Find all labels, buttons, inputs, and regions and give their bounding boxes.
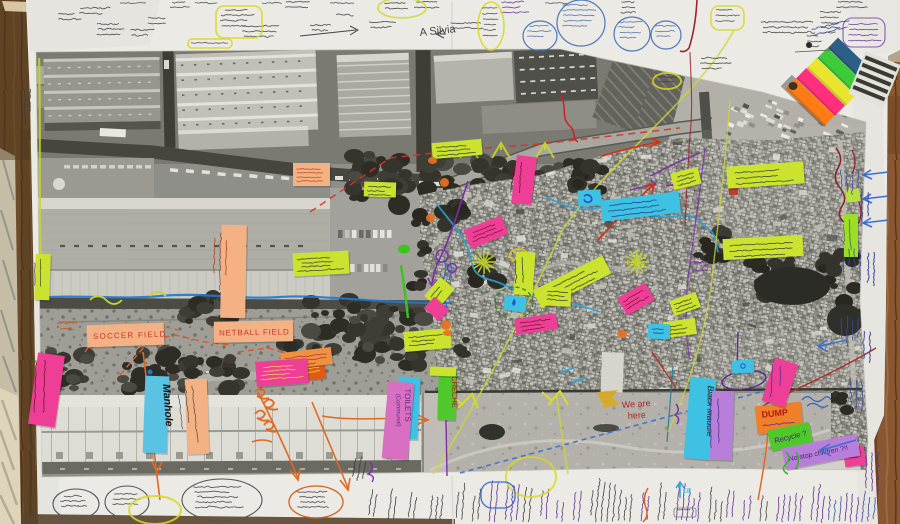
svg-text:NETBALL FIELD: NETBALL FIELD [219, 327, 290, 337]
svg-text:We are: We are [621, 398, 650, 410]
svg-text:CRECHE: CRECHE [450, 376, 460, 408]
svg-text:here: here [627, 410, 646, 421]
svg-text:(Communal): (Communal) [394, 394, 401, 427]
svg-text:EE: EE [683, 489, 691, 495]
svg-text:TOILETS: TOILETS [403, 388, 413, 421]
